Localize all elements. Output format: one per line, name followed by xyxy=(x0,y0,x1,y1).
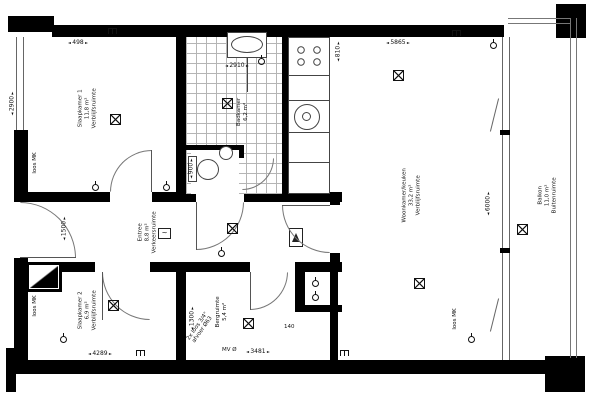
wall xyxy=(62,262,95,272)
socket-icon xyxy=(312,280,319,287)
thermostat-icon: ~ xyxy=(158,228,171,239)
balcony-door-leaf xyxy=(490,98,499,131)
ceiling-light-icon xyxy=(243,318,254,329)
dimension-left-side: 2900 xyxy=(9,87,16,121)
wc-sink xyxy=(219,146,233,160)
note-loos-mk-2: loos MK xyxy=(32,289,38,323)
wall xyxy=(150,262,250,272)
wall xyxy=(52,25,504,37)
kitchen-sink-drain xyxy=(302,112,311,121)
wall xyxy=(14,360,545,374)
door-leaf xyxy=(250,272,251,310)
wall-light-icon xyxy=(452,30,461,36)
dimension-bottom-left: 4289 xyxy=(78,350,122,357)
counter-divider xyxy=(288,162,330,163)
ceiling-light-icon xyxy=(414,278,425,289)
meter-cupboard xyxy=(26,262,62,292)
room-label-woonkamer: Woonkamer/keuken 33,2 m² Verblijfsruimte xyxy=(402,160,423,230)
wall xyxy=(14,130,28,200)
room-label-balkon: Balkon 11,0 m² Buitenruimte xyxy=(538,160,559,230)
door-leaf xyxy=(102,272,103,320)
balcony-edge xyxy=(508,18,570,24)
dimension-bottom-middle: 3481 xyxy=(236,348,280,355)
wall-light-icon xyxy=(340,350,349,356)
dimension-shaft: 140 xyxy=(284,324,295,330)
socket-icon xyxy=(163,184,170,191)
door-leaf xyxy=(282,205,330,206)
meter-cupboard-triangle-icon xyxy=(30,266,58,288)
floor-plan: ~ Slaapkamer 1 11,8 m² Verblijfsruimte B… xyxy=(0,0,600,400)
wall xyxy=(176,37,186,194)
socket-icon xyxy=(312,294,319,301)
wall xyxy=(8,16,54,32)
wall xyxy=(14,192,110,202)
ceiling-light-icon xyxy=(227,223,238,234)
room-label-bergruimte: Bergruimte 5,4 m² xyxy=(215,277,229,347)
door-arc-storage xyxy=(250,272,288,310)
counter-divider xyxy=(288,75,330,76)
socket-icon xyxy=(92,184,99,191)
door-arc-bedroom2 xyxy=(102,272,150,320)
facade-mullion xyxy=(500,248,510,253)
door-leaf xyxy=(151,150,152,192)
ceiling-light-icon xyxy=(222,98,233,109)
ceiling-light-icon xyxy=(108,300,119,311)
wall xyxy=(6,348,16,392)
wall xyxy=(14,262,26,272)
facade-mullion xyxy=(500,130,510,135)
door-arc-bedroom1 xyxy=(110,150,152,192)
window-left xyxy=(16,37,24,130)
room-label-slaapkamer-2: Slaapkamer 2 6,9 m² Verblijfsruimte xyxy=(78,275,99,345)
socket-icon xyxy=(468,336,475,343)
wall-light-icon xyxy=(136,350,145,356)
socket-icon xyxy=(490,42,497,49)
balcony-door-leaf xyxy=(490,298,499,331)
room-label-entree: Entree 8,8 m² Verkeersruimte xyxy=(138,197,159,267)
note-loos-mk-3: loos MK xyxy=(452,302,458,336)
counter-divider xyxy=(288,100,330,101)
wall xyxy=(176,272,186,364)
ceiling-light-icon xyxy=(393,70,404,81)
note-loos-mk-1: loos MK xyxy=(32,146,38,180)
wall xyxy=(330,262,338,362)
dimension-toilet-width: 900 xyxy=(188,152,195,186)
counter-divider xyxy=(288,132,330,133)
wall-light-icon xyxy=(108,28,117,34)
room-label-slaapkamer-1: Slaapkamer 1 11,8 m² Verblijfsruimte xyxy=(78,73,99,143)
wall xyxy=(330,192,340,205)
glazed-facade xyxy=(502,37,510,360)
door-leaf xyxy=(20,257,76,258)
door-arc-entry xyxy=(20,202,76,258)
washbasin-bowl xyxy=(231,36,263,53)
dimension-kitchen: 810 xyxy=(335,35,342,69)
dimension-top-right: 5865 xyxy=(378,39,418,46)
toilet-bowl xyxy=(197,159,219,180)
socket-icon xyxy=(258,58,265,65)
cooktop-icon xyxy=(292,42,326,70)
ceiling-light-icon xyxy=(110,114,121,125)
wall xyxy=(545,356,585,392)
socket-icon xyxy=(60,336,67,343)
room-label-badkamer: Badkamer 6,2 m² xyxy=(236,77,250,147)
note-vent: MV Ø xyxy=(222,347,237,353)
dimension-living-height: 6000 xyxy=(485,184,492,224)
ceiling-light-icon xyxy=(517,224,528,235)
dimension-entree-width: 1500 xyxy=(61,212,68,246)
wall xyxy=(239,145,244,158)
dimension-bathroom-width: 2910 xyxy=(217,62,257,69)
dimension-top-left: 498 xyxy=(60,39,96,46)
balcony-railing xyxy=(570,18,577,358)
door-leaf xyxy=(196,202,197,250)
socket-icon xyxy=(218,250,225,257)
